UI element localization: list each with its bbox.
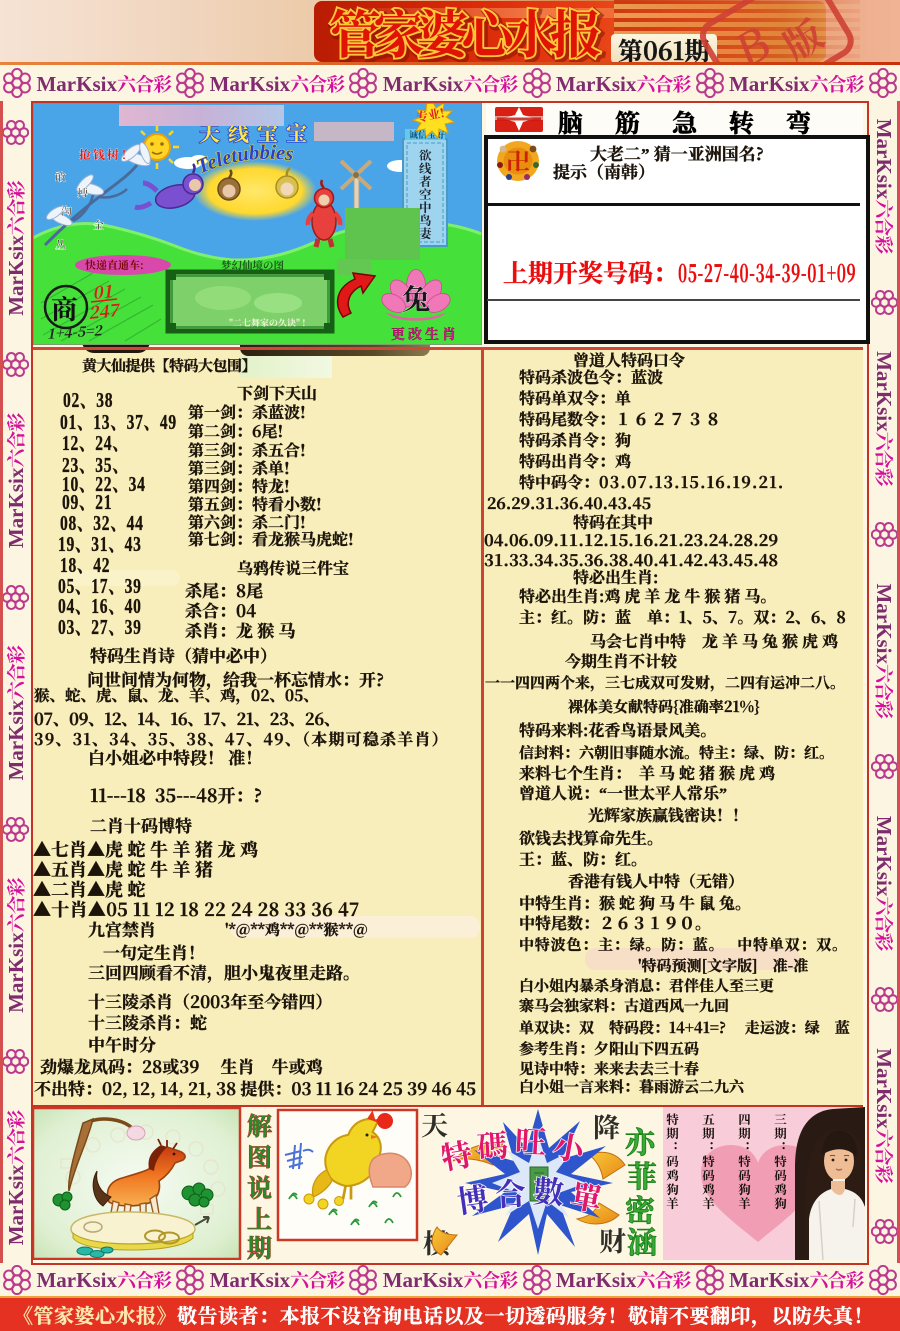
svg-text:博: 博 bbox=[454, 1173, 491, 1222]
svg-text:降: 降 bbox=[593, 1107, 620, 1145]
svg-text:1+4-5=2: 1+4-5=2 bbox=[46, 320, 104, 344]
svg-text:"二七舞家の久诀" !: "二七舞家の久诀" ! bbox=[229, 316, 306, 329]
svg-text:期: 期 bbox=[247, 1229, 272, 1260]
svg-text:淘: 淘 bbox=[61, 203, 72, 219]
svg-text:卍: 卍 bbox=[506, 142, 530, 177]
svg-text:妻: 妻 bbox=[419, 224, 432, 242]
svg-text:小: 小 bbox=[550, 1121, 591, 1171]
svg-text:搏: 搏 bbox=[77, 185, 88, 201]
svg-text:涵: 涵 bbox=[627, 1218, 657, 1260]
svg-text:碼: 碼 bbox=[475, 1120, 509, 1167]
svg-text:金: 金 bbox=[93, 217, 104, 233]
svg-text:更改生肖: 更改生肖 bbox=[391, 324, 459, 344]
svg-text:财: 财 bbox=[599, 1220, 626, 1259]
svg-text:旺: 旺 bbox=[514, 1116, 547, 1163]
svg-text:快递直通车:: 快递直通车: bbox=[85, 257, 144, 273]
svg-text:管家婆心水报: 管家婆心水报 bbox=[329, 2, 601, 64]
svg-text:兔: 兔 bbox=[402, 277, 431, 318]
svg-text:數: 數 bbox=[532, 1166, 566, 1213]
svg-text:敢: 敢 bbox=[55, 169, 66, 185]
svg-text:合: 合 bbox=[494, 1168, 527, 1215]
svg-text:丛: 丛 bbox=[55, 237, 66, 253]
svg-text:抢钱树！: 抢钱树！ bbox=[79, 146, 135, 163]
svg-text:特: 特 bbox=[437, 1129, 475, 1179]
